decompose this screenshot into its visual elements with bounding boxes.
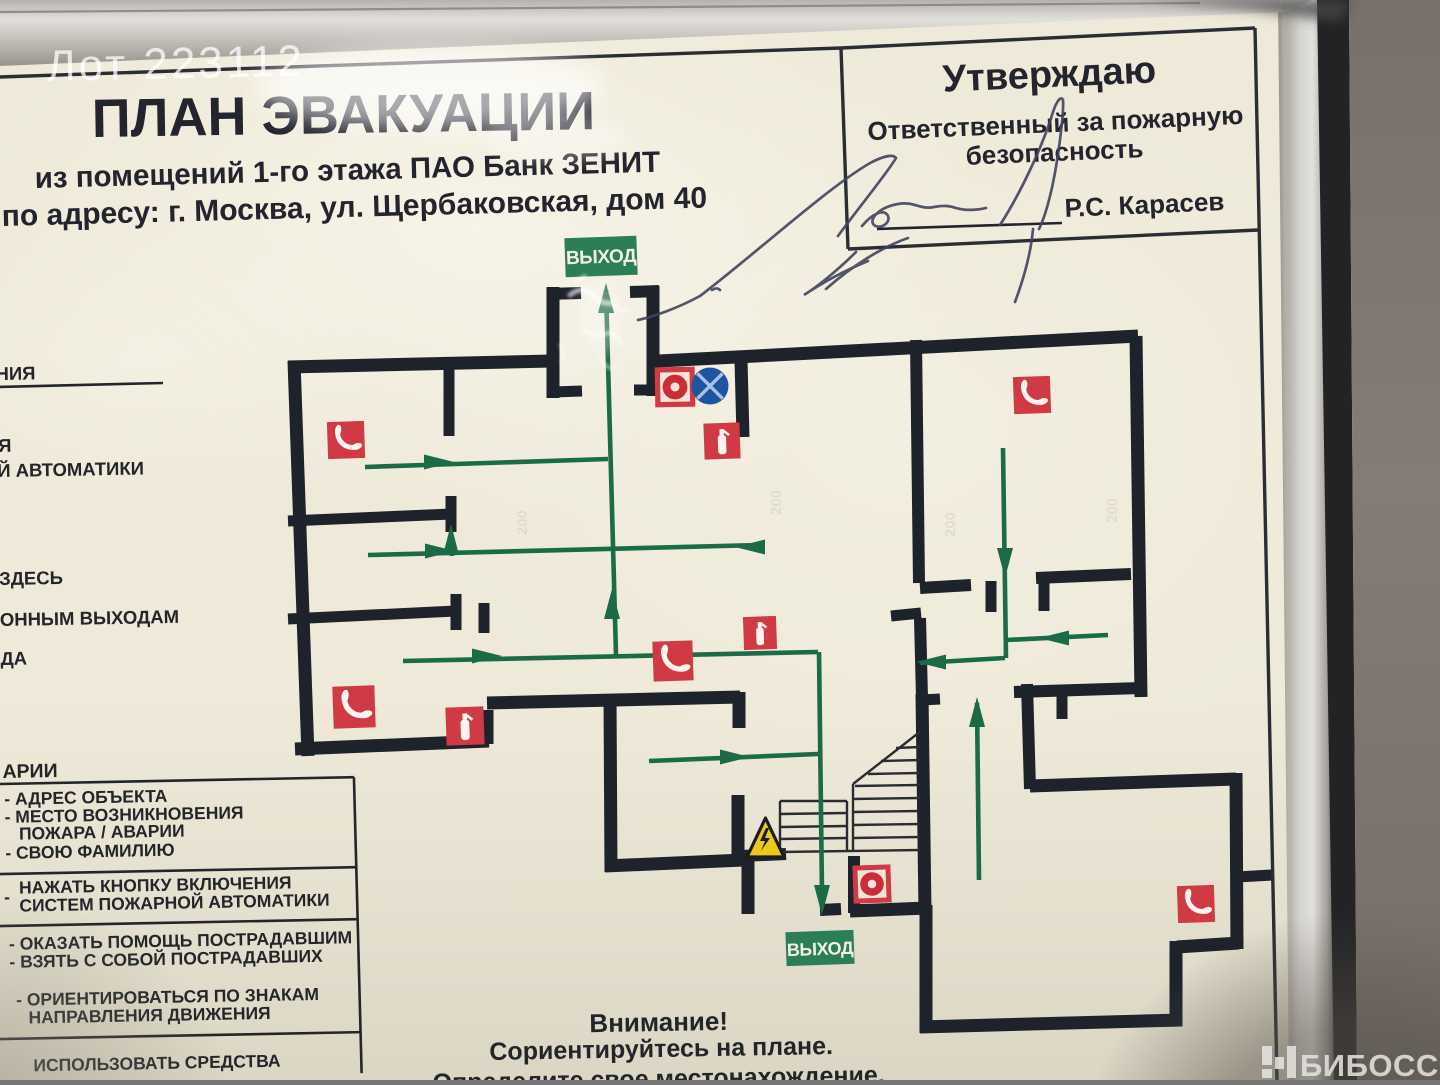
svg-text:ВЫХОД: ВЫХОД bbox=[787, 938, 855, 960]
svg-text:ВЫХОД: ВЫХОД bbox=[566, 246, 638, 269]
svg-text:БИБОСС: БИБОСС bbox=[1300, 1048, 1439, 1080]
svg-text:ДА: ДА bbox=[0, 648, 27, 669]
svg-text:200: 200 bbox=[514, 510, 531, 535]
svg-text:ОННЫМ ВЫХОДАМ: ОННЫМ ВЫХОДАМ bbox=[0, 606, 179, 630]
svg-text:Сориентируйтесь на плане.: Сориентируйтесь на плане. bbox=[489, 1032, 833, 1066]
svg-text:Лот 223112: Лот 223112 bbox=[46, 37, 305, 91]
svg-text:Й АВТОМАТИКИ: Й АВТОМАТИКИ bbox=[0, 458, 144, 482]
svg-text:ИЯ: ИЯ bbox=[0, 435, 12, 456]
svg-text:ЗДЕСЬ: ЗДЕСЬ bbox=[0, 567, 63, 589]
svg-text:200: 200 bbox=[942, 512, 959, 537]
svg-text:НИЯ: НИЯ bbox=[0, 362, 36, 384]
svg-text:АРИИ: АРИИ bbox=[2, 760, 58, 783]
svg-text:200: 200 bbox=[1104, 498, 1121, 523]
svg-text:- СВОЮ ФАМИЛИЮ: - СВОЮ ФАМИЛИЮ bbox=[5, 840, 175, 863]
svg-text:200: 200 bbox=[768, 490, 785, 515]
